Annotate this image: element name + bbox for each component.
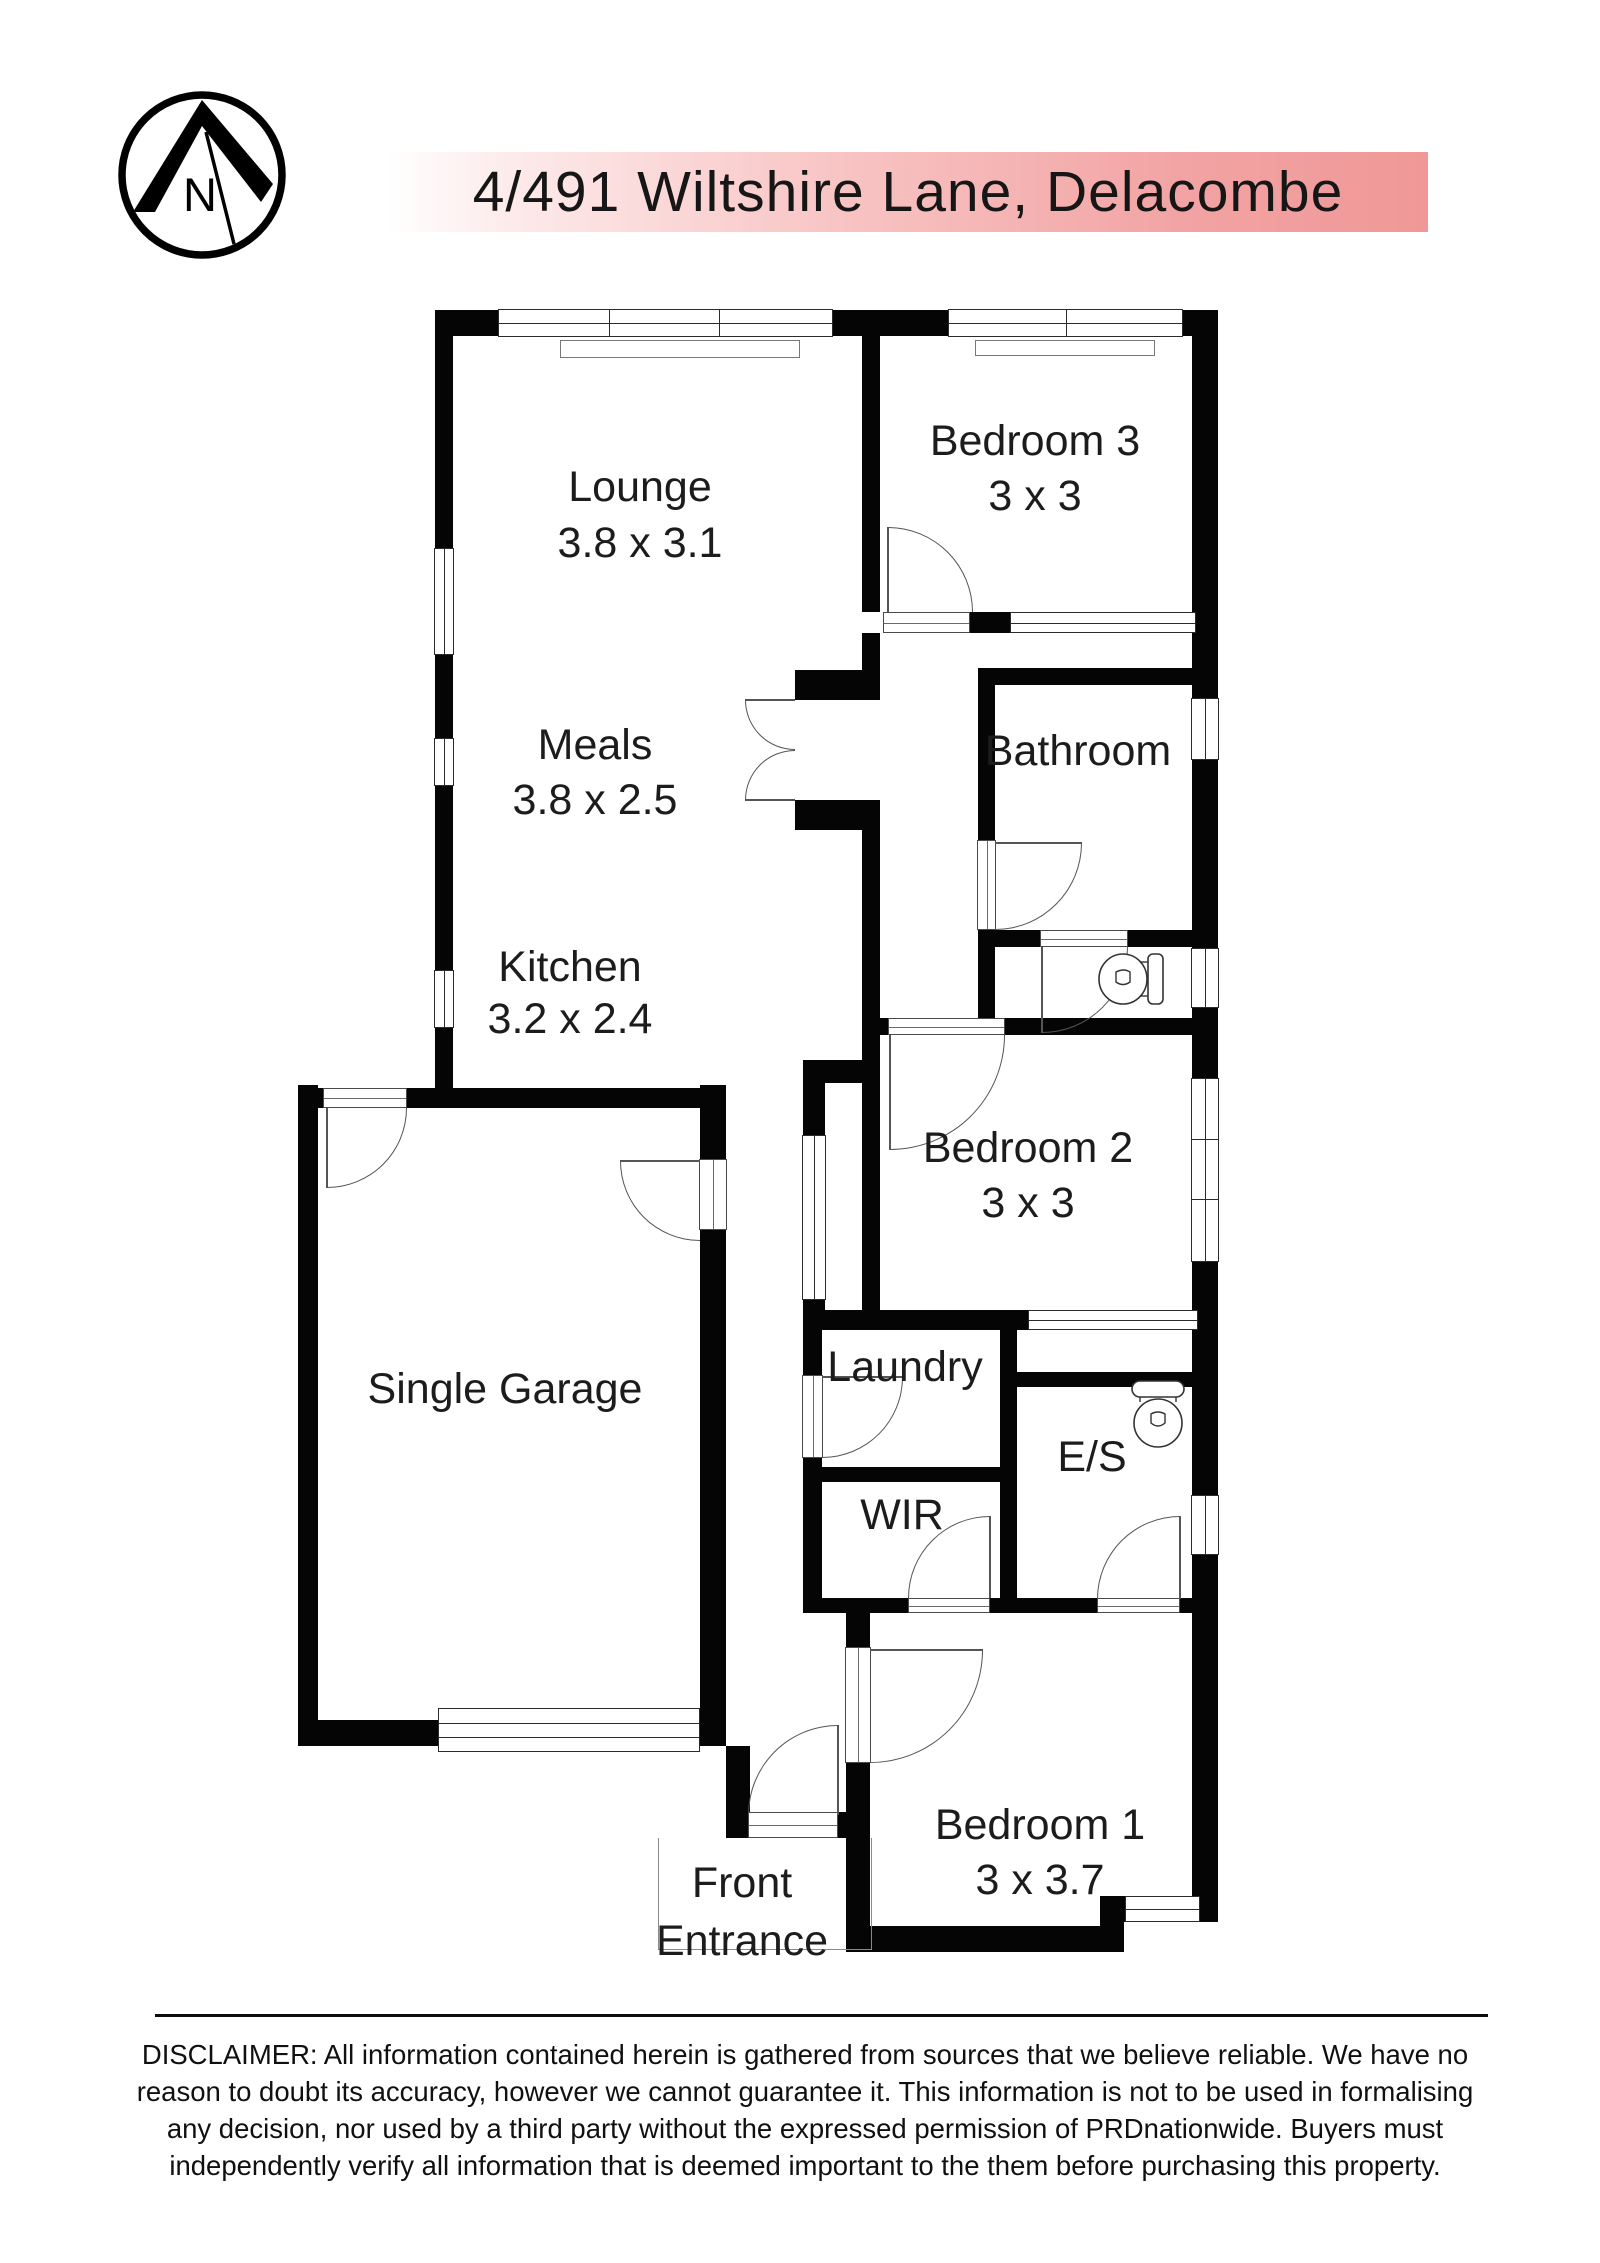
room-label-lounge: Lounge	[568, 466, 712, 509]
door-swing-arc	[995, 843, 1082, 930]
window-sill	[975, 340, 1155, 356]
toilet-icon-ensuite	[1128, 1378, 1190, 1452]
door-swing-arc	[745, 750, 795, 800]
label-front-entrance-1: Front	[692, 1862, 792, 1905]
wall	[298, 1720, 438, 1746]
wall	[822, 1467, 1000, 1482]
window	[1191, 698, 1219, 760]
door-swing-arc	[870, 1650, 983, 1763]
door-panel	[1179, 1516, 1181, 1599]
room-label-bedroom1: Bedroom 1	[935, 1804, 1145, 1847]
disclaimer-line: DISCLAIMER: All information contained he…	[115, 2036, 1495, 2073]
door-panel	[995, 842, 1082, 844]
room-label-laundry: Laundry	[827, 1346, 982, 1389]
address-title-band: 4/491 Wiltshire Lane, Delacombe	[388, 152, 1428, 232]
wall	[862, 1035, 880, 1310]
window	[1191, 948, 1219, 1008]
room-dims-lounge: 3.8 x 3.1	[558, 522, 723, 565]
door-frame	[977, 840, 996, 930]
door-frame	[883, 612, 970, 633]
door-frame	[1040, 930, 1128, 947]
wall	[407, 1088, 726, 1108]
north-compass-icon: N	[113, 86, 291, 264]
room-label-bedroom3: Bedroom 3	[930, 420, 1140, 463]
wall	[298, 1085, 318, 1746]
disclaimer-line: reason to doubt its accuracy, however we…	[115, 2073, 1495, 2110]
door-frame	[908, 1598, 990, 1613]
door-panel	[745, 699, 795, 701]
room-label-ensuite: E/S	[1057, 1436, 1126, 1479]
room-dims-bedroom1: 3 x 3.7	[975, 1859, 1104, 1902]
door-swing-arc	[327, 1108, 407, 1188]
room-label-garage: Single Garage	[368, 1368, 643, 1411]
room-dims-kitchen: 3.2 x 2.4	[488, 998, 653, 1041]
disclaimer-line: any decision, nor used by a third party …	[115, 2110, 1495, 2147]
window	[1191, 1495, 1219, 1555]
door-frame	[845, 1647, 871, 1763]
window	[1125, 1896, 1200, 1922]
window	[948, 309, 1183, 337]
door-panel	[989, 1516, 991, 1598]
room-dims-bedroom2: 3 x 3	[981, 1182, 1074, 1225]
door-panel	[620, 1160, 700, 1162]
door-swing-arc	[888, 527, 973, 612]
toilet-icon-wc	[1096, 950, 1166, 1008]
door-swing-arc	[620, 1161, 700, 1241]
wall	[846, 1926, 1124, 1952]
room-label-bedroom2: Bedroom 2	[923, 1127, 1133, 1170]
compass-n-label: N	[183, 168, 217, 221]
footer-divider	[155, 2014, 1488, 2017]
wall	[978, 947, 995, 1018]
room-label-bathroom: Bathroom	[985, 730, 1171, 773]
room-label-kitchen: Kitchen	[498, 946, 641, 989]
room-label-meals: Meals	[538, 724, 653, 767]
window	[434, 548, 454, 655]
door-panel	[837, 1725, 839, 1815]
door-frame	[748, 1812, 838, 1838]
window-mullion	[609, 310, 610, 336]
wall	[726, 1746, 750, 1816]
garage-door-line	[439, 1737, 699, 1738]
window-mullion	[1192, 1139, 1218, 1140]
robe-band	[1028, 1310, 1198, 1330]
wall	[803, 1330, 822, 1613]
label-front-entrance-2: Entrance	[656, 1920, 828, 1963]
room-label-wir: WIR	[860, 1494, 944, 1537]
wall	[970, 612, 1010, 633]
floor-plan-page: N 4/491 Wiltshire Lane, Delacombe Lounge…	[0, 0, 1600, 2263]
door-frame	[699, 1159, 727, 1230]
door-swing-arc	[748, 1725, 838, 1815]
door-frame	[1097, 1598, 1180, 1613]
window-mullion	[719, 310, 720, 336]
garage-door-line	[439, 1723, 699, 1724]
wall	[1196, 612, 1218, 633]
door-frame	[323, 1088, 407, 1108]
disclaimer-line: independently verify all information tha…	[115, 2147, 1495, 2184]
address-title: 4/491 Wiltshire Lane, Delacombe	[388, 152, 1428, 232]
door-frame	[888, 1018, 1005, 1035]
robe-band	[1010, 612, 1196, 633]
window	[434, 970, 454, 1028]
wall	[862, 800, 880, 1035]
wall	[1000, 1330, 1017, 1613]
door-panel	[745, 799, 795, 801]
garage-door	[438, 1708, 700, 1752]
wall	[862, 336, 880, 612]
window	[434, 738, 454, 786]
wall	[298, 1088, 323, 1108]
room-dims-meals: 3.8 x 2.5	[513, 779, 678, 822]
linen-band	[802, 1135, 826, 1300]
door-panel	[870, 1649, 983, 1651]
door-panel	[889, 1035, 891, 1150]
window-mullion	[1192, 1199, 1218, 1200]
door-frame	[802, 1375, 823, 1458]
wall	[795, 670, 880, 700]
door-swing-arc	[1097, 1516, 1180, 1599]
window-sill	[560, 340, 800, 358]
window	[1191, 1078, 1219, 1262]
door-swing-arc	[745, 700, 795, 750]
wall	[978, 668, 1218, 685]
disclaimer-text: DISCLAIMER: All information contained he…	[115, 2036, 1495, 2184]
door-panel	[1041, 947, 1043, 1033]
window	[498, 309, 833, 337]
window-mullion	[1066, 310, 1067, 336]
door-panel	[326, 1108, 328, 1188]
room-dims-bedroom3: 3 x 3	[988, 475, 1081, 518]
door-panel	[887, 527, 889, 612]
